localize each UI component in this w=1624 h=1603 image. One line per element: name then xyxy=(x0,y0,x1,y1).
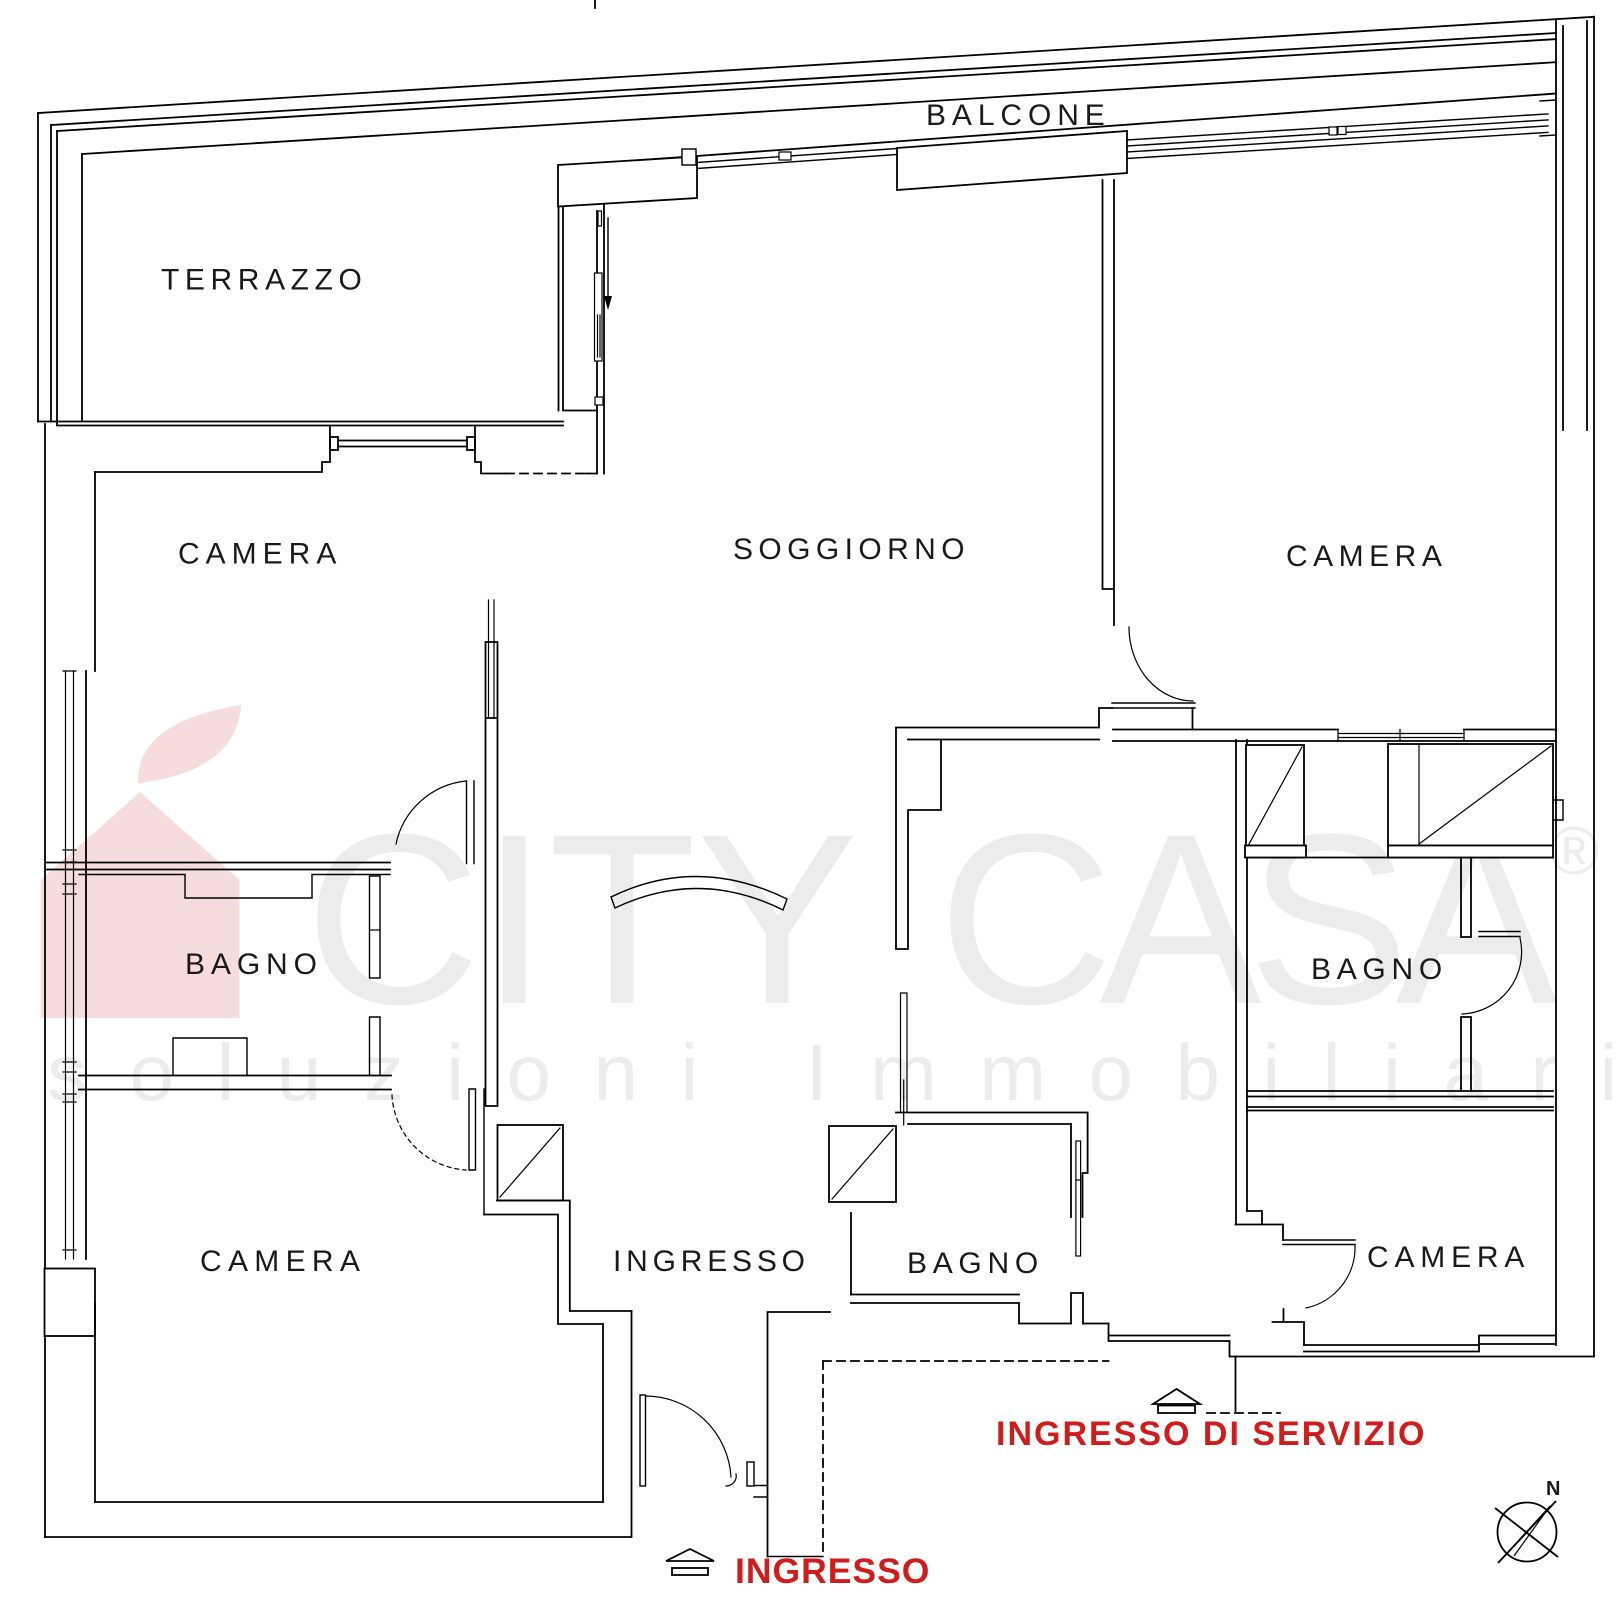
svg-text:INGRESSO: INGRESSO xyxy=(613,1245,810,1278)
svg-text:BALCONE: BALCONE xyxy=(926,99,1111,132)
svg-text:N: N xyxy=(1546,1478,1560,1500)
svg-text:soluzioni Immobiliari: soluzioni Immobiliari xyxy=(47,1028,1624,1117)
svg-text:TERRAZZO: TERRAZZO xyxy=(161,264,367,297)
svg-text:CAMERA: CAMERA xyxy=(200,1245,366,1278)
svg-text:BAGNO: BAGNO xyxy=(1311,953,1448,986)
svg-text:CAMERA: CAMERA xyxy=(178,538,342,571)
svg-text:CAMERA: CAMERA xyxy=(1286,540,1447,573)
svg-text:SOGGIORNO: SOGGIORNO xyxy=(733,533,970,566)
svg-text:BAGNO: BAGNO xyxy=(907,1247,1044,1280)
svg-text:CAMERA: CAMERA xyxy=(1367,1241,1530,1274)
svg-text:BAGNO: BAGNO xyxy=(185,948,323,981)
svg-text:INGRESSO DI SERVIZIO: INGRESSO DI SERVIZIO xyxy=(996,1415,1426,1453)
svg-text:CITY: CITY xyxy=(305,784,859,1055)
svg-text:INGRESSO: INGRESSO xyxy=(735,1551,930,1591)
